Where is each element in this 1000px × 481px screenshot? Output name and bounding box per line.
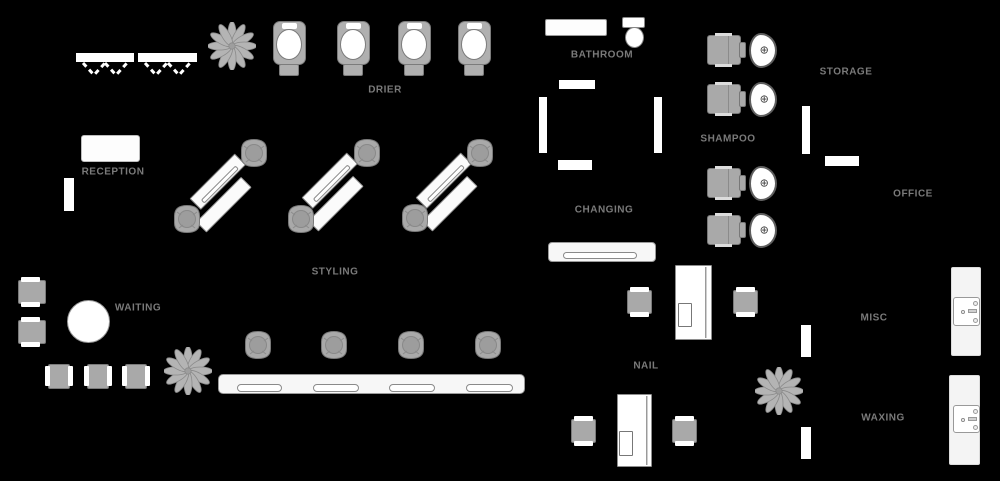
chair-armrest [45,366,50,386]
chair-pad [715,82,732,85]
faucet-knob [973,318,978,323]
room-label-waxing: WAXING [861,413,905,424]
room-label-drier: DRIER [368,85,402,96]
room-label-storage: STORAGE [820,67,873,78]
sink [953,297,980,326]
styling-chair [472,329,504,361]
room-label-misc: MISC [861,313,888,324]
reception-desk [81,135,140,162]
drier-chair [337,21,370,77]
wall-segment [801,427,811,459]
nail-stool [619,431,633,456]
wall-segment [801,325,811,357]
chair-pad [715,113,732,116]
display-rack [136,50,200,78]
chair-armrest [122,366,127,386]
wall-segment [825,156,859,166]
counter-slot [389,384,435,392]
plant-icon [208,22,256,70]
faucet-knob [973,425,978,430]
drier-chair [398,21,431,77]
wall-segment [654,97,662,153]
nail-chair [570,416,598,446]
chair-armrest [68,366,73,386]
chair-armrest [630,287,649,292]
styling-chair [464,137,496,169]
styling-chair [285,203,317,235]
shampoo-station: ⊕ [707,82,777,117]
chair-pad [715,166,732,169]
shampoo-sink: ⊕ [749,166,777,201]
drier-hood [461,29,487,60]
chair-armrest [736,287,755,292]
shampoo-station: ⊕ [707,166,777,201]
chair-armrest [736,312,755,317]
chair-armrest [107,366,112,386]
nail-chair [732,287,760,317]
chair-armrest [739,91,746,107]
chair-armrest [739,42,746,58]
counter-slot [466,384,513,392]
sink [953,405,980,433]
wall-segment [64,178,74,211]
chair-seat [627,290,652,314]
chair-armrest [21,277,40,282]
shampoo-chair [707,168,741,198]
shampoo-chair [707,215,741,245]
chair-pad [715,64,732,67]
waiting-chair [17,277,48,307]
chair-armrest [739,175,746,191]
display-rack [74,50,138,78]
styling-chair [399,202,431,234]
chair-seat [125,364,147,389]
chair-armrest [630,312,649,317]
room-label-shampoo: SHAMPOO [700,134,755,145]
wall-segment [559,80,595,89]
drier-chair [458,21,491,77]
drier-chair [273,21,306,77]
nail-table-edge [705,267,707,338]
nail-stool [678,303,692,327]
faucet-cross-icon: ⊕ [760,178,769,189]
bathroom-counter [545,19,607,36]
chair-armrest [739,222,746,238]
room-label-changing: CHANGING [575,205,633,216]
room-label-bathroom: BATHROOM [571,50,633,61]
room-label-waiting: WAITING [115,303,161,314]
bench-slot [563,252,637,259]
plant-icon [164,347,212,395]
chair-seat [18,320,46,344]
drier-hood [276,29,302,60]
room-label-reception: RECEPTION [82,167,145,178]
floor-plan: ⊕ ⊕ ⊕ ⊕ [0,0,1000,481]
room-label-nail: NAIL [633,361,658,372]
styling-chair [395,329,427,361]
drier-seat [279,64,299,76]
chair-seat [571,419,596,443]
wall-segment [558,160,592,170]
nail-chair [626,287,654,317]
waiting-chair [122,362,150,391]
chair-seat [48,364,70,389]
drier-seat [464,64,484,76]
faucet-cross-icon: ⊕ [760,225,769,236]
shampoo-station: ⊕ [707,33,777,68]
waiting-table [67,300,110,343]
faucet-cross-icon: ⊕ [760,94,769,105]
styling-chair [242,329,274,361]
chair-armrest [21,342,40,347]
chair-armrest [574,441,593,446]
counter-slot [237,384,282,392]
chair-pad [715,197,732,200]
shampoo-sink: ⊕ [749,82,777,117]
drier-seat [404,64,424,76]
nail-table-edge [646,396,648,465]
room-label-office: OFFICE [893,189,933,200]
waiting-chair [17,317,48,347]
styling-chair [171,203,203,235]
sink-faucet [968,309,977,313]
waiting-chair [84,362,112,391]
chair-seat [18,280,46,304]
chair-seat [733,290,758,314]
faucet-knob [973,301,978,306]
chair-seat [672,419,697,443]
wall-segment [802,106,810,154]
shampoo-station: ⊕ [707,213,777,248]
shampoo-chair [707,35,741,65]
chair-armrest [145,366,150,386]
styling-chair [318,329,350,361]
chair-armrest [574,416,593,421]
nail-chair [671,416,699,446]
chair-armrest [21,317,40,322]
chair-pad [715,213,732,216]
styling-chair [351,137,383,169]
faucet-cross-icon: ⊕ [760,45,769,56]
shampoo-sink: ⊕ [749,33,777,68]
shampoo-sink: ⊕ [749,213,777,248]
drier-hood [340,29,366,60]
waiting-chair [45,362,73,391]
sink-drain [961,418,965,422]
drier-hood [401,29,427,60]
sink-drain [961,310,965,314]
shampoo-chair [707,84,741,114]
chair-armrest [675,441,694,446]
styling-chair [238,137,270,169]
sink-faucet [968,417,977,421]
faucet-knob [973,409,978,414]
chair-seat [87,364,109,389]
wall-segment [539,97,547,153]
room-label-styling: STYLING [312,267,359,278]
chair-armrest [84,366,89,386]
chair-pad [715,244,732,247]
toilet-bowl [625,27,644,48]
drier-seat [343,64,363,76]
counter-slot [313,384,359,392]
plant-icon [755,367,803,415]
chair-armrest [21,302,40,307]
chair-pad [715,33,732,36]
chair-armrest [675,416,694,421]
